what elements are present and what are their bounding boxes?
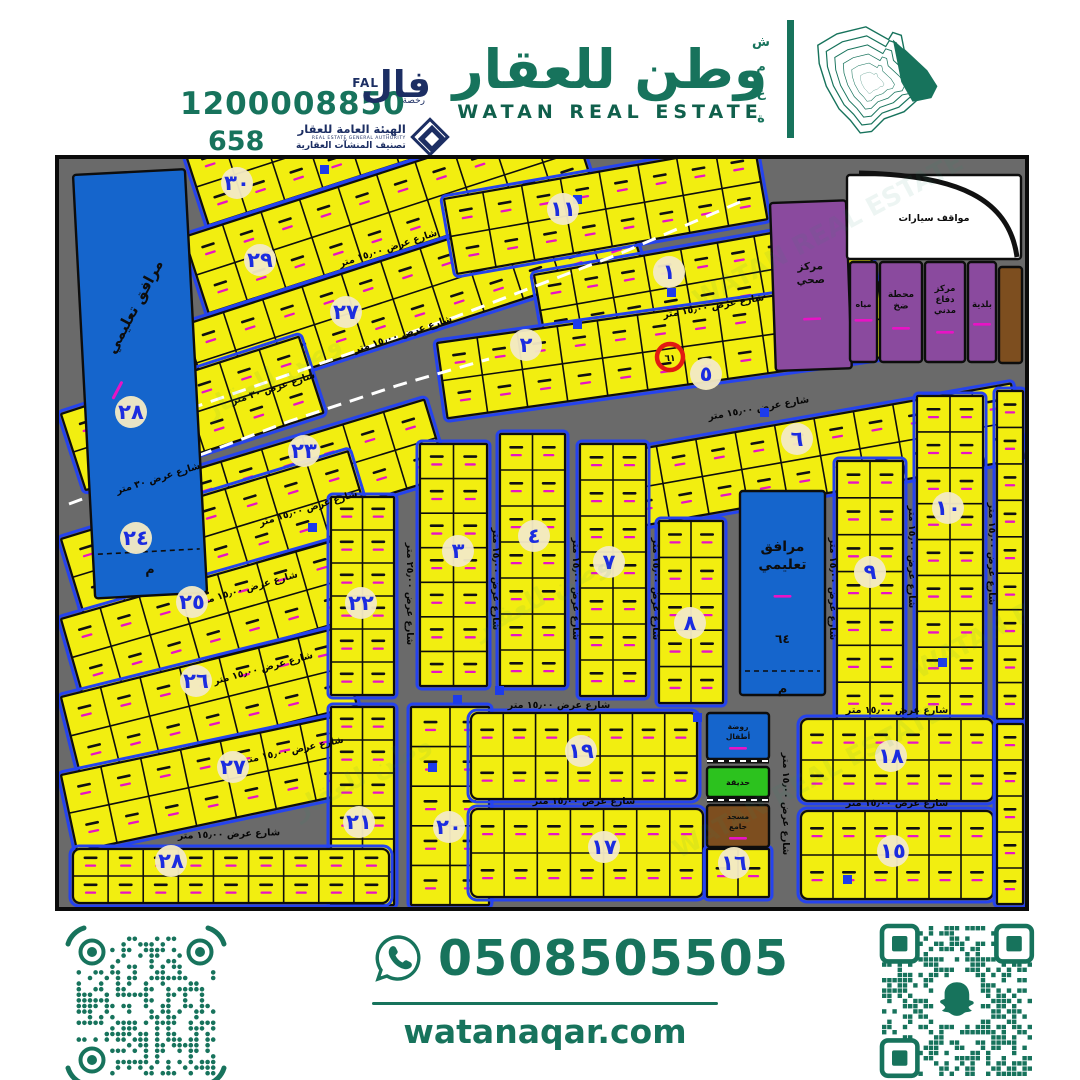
svg-text:١: ١ [663,260,676,284]
whatsapp-number: 0508505505 [438,930,789,987]
block-number-badge: ١٩ [565,735,597,767]
brand-name-english: WATAN REAL ESTATE [440,101,780,123]
fal-logo-sub: رخصة [339,97,425,106]
block-number-badge: ٣ [442,535,474,567]
block-number-badge: ٢٧ [330,296,362,328]
water-parcel: مياه [850,262,877,362]
map-dot [760,408,769,417]
whatsapp-contact: 0508505505 [372,930,789,987]
block-number-badge: ٢٥ [176,586,208,618]
block-number-badge: ١٠ [932,492,964,524]
fal-logo-latin: FAL [293,77,379,89]
map-dot [495,686,504,695]
svg-text:١١: ١١ [550,197,576,221]
facility-label: مياه [856,300,872,309]
fal-license-logo: فال FAL رخصة [345,66,431,124]
svg-text:٢٧: ٢٧ [333,300,359,324]
facility-label: ضخ [893,302,908,312]
education-parcel-center: مرافقتعليميم٦٤ [740,491,825,697]
qr-code-snapchat [872,916,1042,1080]
street-label: شارع عرض ١٥٫٠٠ متر [845,798,948,809]
svg-text:٢: ٢ [520,333,533,357]
svg-text:٢١: ٢١ [346,810,372,834]
map-dot [693,713,702,722]
block-number-badge: ٢ [510,329,542,361]
rega-name-ar: الهيئة العامة للعقار [296,123,406,136]
block-number-badge: ٢٨ [155,845,187,877]
facility-label: مرافق [761,539,805,555]
block-number-badge: ١١ [547,193,579,225]
facility-label: دفاع [936,295,956,305]
block-number-badge: ٣٠ [221,167,253,199]
svg-text:٢٦: ٢٦ [183,669,209,693]
facility-label: مركز [934,284,956,294]
rega-classification: تصنيف المنشآت العقارية [296,141,406,151]
saudi-arabia-map-icon [798,12,943,152]
civil-defense-parcel: مركزدفاعمدني [925,262,965,362]
svg-text:٤: ٤ [528,524,541,548]
block-number-badge: ٨ [674,607,706,639]
svg-text:٢٠: ٢٠ [436,815,462,839]
svg-text:١٠: ١٠ [935,496,961,520]
svg-text:٨: ٨ [684,611,697,635]
rega-diamond-icon [413,120,447,154]
block-number-badge: ٦ [781,423,813,455]
block-number-badge: ٢٣ [288,435,320,467]
land-plot-map: ممرافق تعليميمرافقتعليميم٦٤مركزصحيمياهمح… [55,155,1029,911]
whatsapp-icon [372,933,424,985]
svg-text:٥: ٥ [700,362,713,386]
facility-label: محطة [888,290,914,300]
block-number-badge: ٢٠ [433,811,465,843]
block-number-badge: ١٦ [718,847,750,879]
block-number-badge: ٩ [854,556,886,588]
block-number-badge: ٥ [690,358,722,390]
facility-label: أطفال [726,731,750,741]
facility-label: بلدية [972,300,992,310]
facility-label: مدني [934,306,956,316]
plot-block [70,846,392,906]
svg-text:٢٧: ٢٧ [220,755,246,779]
svg-text:٦٤: ٦٤ [775,632,790,646]
block-number-badge: ٢٩ [244,244,276,276]
footer-divider [372,1002,718,1005]
municipality-parcel: بلدية [968,262,996,362]
svg-text:٢٥: ٢٥ [179,590,205,614]
brand-divider-bar [787,20,794,138]
website-url: watanaqar.com [372,1012,718,1051]
svg-text:٢٨: ٢٨ [118,400,144,424]
block-number-badge: ٢٢ [345,587,377,619]
map-dot [453,695,462,704]
plot-block [834,458,906,722]
block-number-badge: ٤ [518,520,550,552]
block-number-badge: ١٧ [588,831,620,863]
svg-text:٢٢: ٢٢ [348,591,374,615]
poster: 1200008850 658 فال FAL رخصة الهيئة العام… [0,0,1080,1080]
facility-label: روضة [728,722,749,731]
map-dot [308,523,317,532]
map-dot [573,320,582,329]
svg-text:٢٩: ٢٩ [247,248,273,272]
street-label: شارع عرض ١٥٫٠٠ متر [507,700,610,711]
svg-text:٢٤: ٢٤ [123,526,149,550]
facility-label: صحي [796,274,825,287]
street-label: شارع عرض ١٥٫٠٠ متر [532,796,635,807]
block-number-badge: ١ [653,256,685,288]
block-number-badge: ١٥ [877,835,909,867]
brand-name-arabic: وطن للعقار [440,40,780,99]
street-label: شارع عرض ١٥٫٠٠ متر [650,537,661,640]
facility-label: مواقف سيارات [899,213,970,224]
map-dot [843,875,852,884]
svg-text:٦: ٦ [791,427,804,451]
block-number-badge: ٢٤ [120,522,152,554]
plot-block [497,431,568,689]
block-number-badge: ٢١ [343,806,375,838]
plot-block [994,388,1025,722]
svg-text:٩: ٩ [864,560,877,584]
street-label: شارع عرض ١٥٫٠٠ متر [827,537,838,640]
svg-text:٣٠: ٣٠ [224,171,250,195]
rega-authority-logo: الهيئة العامة للعقار REAL ESTATE GENERAL… [296,120,447,154]
svg-text:١٦: ١٦ [721,851,747,875]
pump-station-parcel: محطةضخ [880,262,922,362]
block-number-badge: ٢٨ [115,396,147,428]
block-number-badge: ٢٧ [217,751,249,783]
snapchat-ghost-icon [940,982,974,1016]
brown-parcel [999,267,1022,363]
plot-block [994,721,1025,907]
facility-label: حديقة [726,778,750,787]
street-label: شارع عرض ١٥٫٠٠ متر [906,505,917,608]
svg-text:م: م [778,682,788,697]
svg-text:٢٨: ٢٨ [158,849,184,873]
facility-label: تعليمي [758,557,806,573]
svg-text:١٥: ١٥ [880,839,906,863]
svg-text:٢٣: ٢٣ [291,439,317,463]
svg-text:٦١: ٦١ [665,354,676,364]
kindergarten-parcel: روضةأطفال [707,713,769,759]
map-dot [320,165,329,174]
plot-block [468,806,706,900]
map-dot [428,763,437,772]
street-label: شارع عرض ٢٥٫٠٠ متر [404,542,415,645]
license-number: 658 [208,126,264,157]
svg-text:م: م [145,562,155,577]
block-number-badge: ٢٦ [180,665,212,697]
map-dot [667,288,676,297]
svg-text:١٧: ١٧ [591,835,617,859]
brand-side-word: شمعة [752,30,770,131]
svg-text:٣: ٣ [452,539,465,563]
svg-text:١٩: ١٩ [568,739,594,763]
brand-logo: وطن للعقار WATAN REAL ESTATE [440,40,780,123]
qr-code-left [62,922,230,1080]
street-label: شارع عرض ١٥٫٠٠ متر [986,502,997,605]
